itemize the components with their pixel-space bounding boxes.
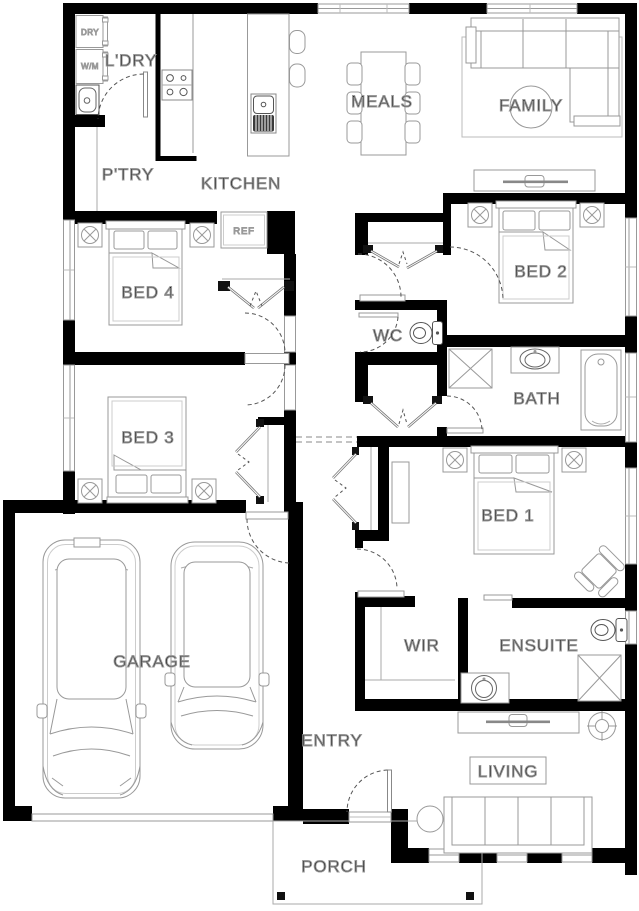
svg-text:LIVING: LIVING bbox=[478, 762, 539, 781]
svg-text:KITCHEN: KITCHEN bbox=[201, 174, 281, 193]
svg-text:BED 4: BED 4 bbox=[121, 283, 174, 302]
svg-text:REF: REF bbox=[233, 226, 254, 237]
svg-text:GARAGE: GARAGE bbox=[113, 652, 191, 671]
svg-text:BED 3: BED 3 bbox=[121, 428, 174, 447]
svg-text:W/M: W/M bbox=[81, 62, 99, 71]
svg-text:BED 1: BED 1 bbox=[481, 506, 534, 525]
svg-text:P'TRY: P'TRY bbox=[102, 165, 154, 184]
svg-text:L'DRY: L'DRY bbox=[105, 51, 157, 70]
svg-text:WC: WC bbox=[373, 326, 403, 345]
svg-text:BATH: BATH bbox=[513, 389, 560, 408]
svg-text:MEALS: MEALS bbox=[351, 92, 413, 111]
svg-text:PORCH: PORCH bbox=[301, 857, 366, 876]
svg-text:DRY: DRY bbox=[81, 28, 99, 37]
svg-text:BED 2: BED 2 bbox=[514, 262, 567, 281]
svg-text:ENTRY: ENTRY bbox=[301, 731, 362, 750]
svg-text:WIR: WIR bbox=[404, 636, 439, 655]
svg-text:ENSUITE: ENSUITE bbox=[499, 636, 578, 655]
svg-text:FAMILY: FAMILY bbox=[499, 96, 563, 115]
